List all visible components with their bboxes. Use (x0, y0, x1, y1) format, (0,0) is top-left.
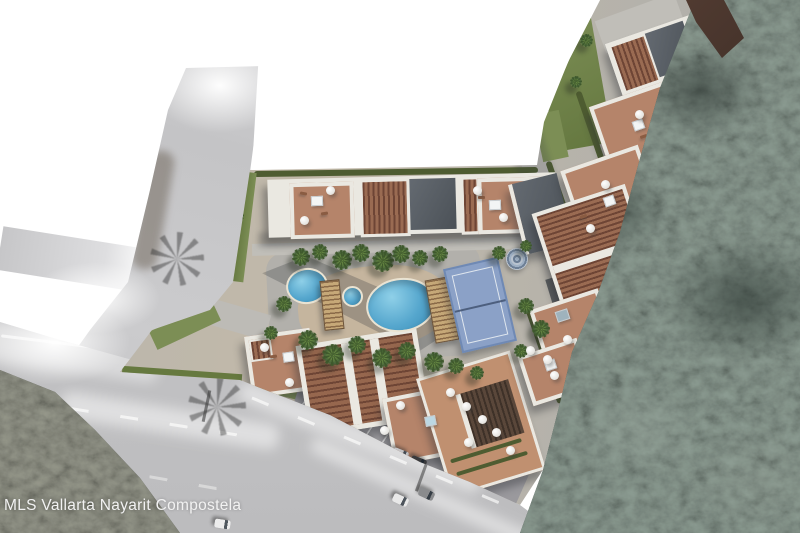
palm-tree (470, 366, 484, 380)
palm-tree (570, 76, 582, 88)
palm-tree (332, 250, 352, 270)
lounger (478, 196, 485, 199)
umbrella (326, 186, 335, 195)
umbrella (506, 446, 515, 455)
palm-tree (398, 342, 416, 360)
palm-tree (518, 298, 534, 314)
pergola-roof (359, 178, 411, 237)
umbrella (300, 216, 309, 225)
palm-tree (264, 326, 278, 340)
umbrella (543, 355, 552, 364)
umbrella (462, 402, 471, 411)
watermark-text: MLS Vallarta Nayarit Compostela (4, 497, 241, 515)
jacuzzi (489, 200, 501, 210)
umbrella (380, 426, 389, 435)
palm-tree (312, 244, 328, 260)
umbrella (601, 180, 610, 189)
umbrella (563, 335, 572, 344)
fade-blob (150, 38, 290, 133)
umbrella (285, 378, 294, 387)
umbrella (446, 388, 455, 397)
umbrella (526, 346, 535, 355)
aerial-site-plan-photo: MLS Vallarta Nayarit Compostela (0, 0, 800, 533)
jacuzzi (311, 196, 323, 206)
palm-tree (322, 344, 344, 366)
umbrella (473, 186, 482, 195)
palm-tree (448, 358, 464, 374)
highway-car (214, 518, 231, 529)
fade-blob (0, 300, 130, 385)
umbrella (492, 428, 501, 437)
umbrella (260, 343, 269, 352)
umbrella (499, 213, 508, 222)
umbrella (396, 401, 405, 410)
umbrella (635, 110, 644, 119)
palm-tree (372, 348, 392, 368)
palm-tree (372, 250, 394, 272)
jacuzzi (424, 415, 437, 427)
palm-tree (412, 250, 428, 266)
palm-tree (352, 244, 370, 262)
palm-tree (492, 246, 506, 260)
palm-tree (424, 352, 444, 372)
umbrella (478, 415, 487, 424)
slate-roof-panel (409, 178, 456, 230)
palm-tree (580, 34, 593, 47)
jacuzzi (282, 351, 294, 362)
palm-tree (348, 336, 366, 354)
terrace-roof-left (289, 182, 354, 240)
palm-tree (292, 248, 310, 266)
palm-tree (392, 245, 410, 263)
umbrella (586, 224, 595, 233)
palm-tree (532, 320, 550, 338)
umbrella (550, 371, 559, 380)
palm-tree (298, 330, 318, 350)
palm-tree (276, 296, 292, 312)
pool-small (342, 286, 363, 307)
palm-tree (520, 240, 532, 252)
palm-shadow (188, 378, 246, 436)
roof-divider (341, 343, 363, 425)
palm-tree (432, 246, 448, 262)
umbrella (464, 438, 473, 447)
